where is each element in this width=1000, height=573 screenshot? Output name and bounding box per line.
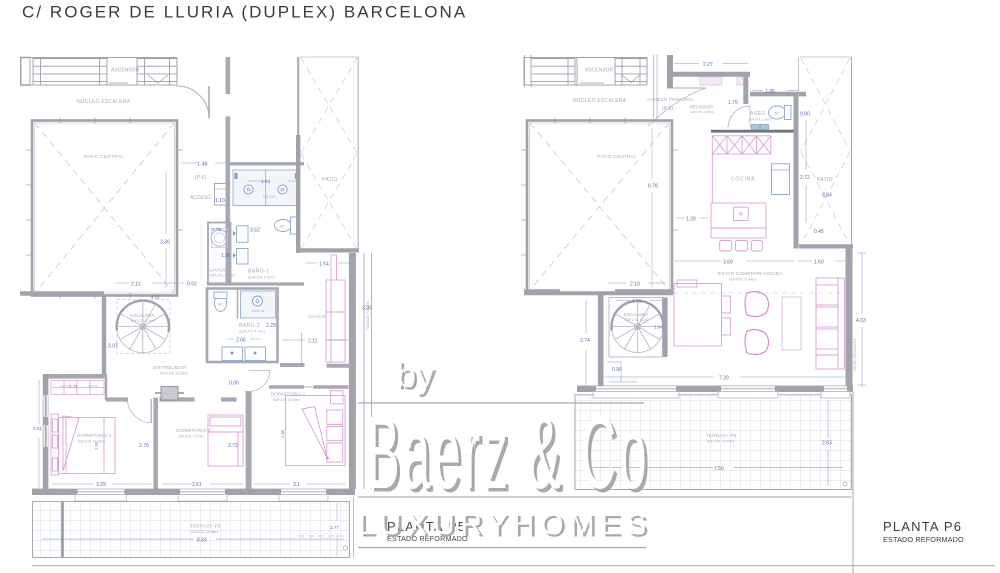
svg-text:1.93: 1.93 <box>261 179 271 185</box>
svg-text:SUP.UTIL 1.7m2: SUP.UTIL 1.7m2 <box>131 319 155 323</box>
svg-text:DUCHA: DUCHA <box>263 195 276 199</box>
svg-text:3.36: 3.36 <box>160 240 170 246</box>
svg-text:4.03: 4.03 <box>856 318 866 324</box>
svg-text:PATIO CENTRAL: PATIO CENTRAL <box>597 154 637 160</box>
svg-text:TERRAZA-P5: TERRAZA-P5 <box>190 524 221 529</box>
svg-text:3.36: 3.36 <box>362 306 372 312</box>
svg-text:C/ ROGER DE LLURIA (DUPLEX) B: C/ ROGER DE LLURIA (DUPLEX) BARCELONA <box>22 3 467 22</box>
svg-text:4.02: 4.02 <box>151 295 160 300</box>
svg-text:SUP.UTIL 21.77m2: SUP.UTIL 21.77m2 <box>707 440 734 444</box>
svg-text:2.61: 2.61 <box>192 482 202 488</box>
svg-text:ESCALERA: ESCALERA <box>624 312 649 317</box>
svg-text:3.07: 3.07 <box>108 344 118 350</box>
svg-text:1.88: 1.88 <box>221 253 231 259</box>
svg-text:2.72: 2.72 <box>800 175 810 181</box>
svg-text:SUP.UTIL 2.89m2: SUP.UTIL 2.89m2 <box>690 110 714 114</box>
svg-text:0.90: 0.90 <box>612 367 622 373</box>
svg-text:1.71: 1.71 <box>69 384 78 389</box>
svg-text:2.76: 2.76 <box>139 443 149 449</box>
svg-text:0.45: 0.45 <box>814 229 824 235</box>
svg-text:3.69: 3.69 <box>723 260 733 266</box>
svg-text:0.90: 0.90 <box>800 112 810 118</box>
svg-text:3.51: 3.51 <box>33 426 42 431</box>
svg-text:ESTADO REFORMADO: ESTADO REFORMADO <box>883 535 964 544</box>
svg-text:7.50: 7.50 <box>714 466 724 472</box>
svg-text:ACCESO PRINCIPAL: ACCESO PRINCIPAL <box>647 97 694 102</box>
svg-text:Baerz & Co: Baerz & Co <box>367 395 650 510</box>
svg-text:VESTIDOR: VESTIDOR <box>308 315 326 319</box>
svg-text:1.77: 1.77 <box>330 525 339 530</box>
svg-text:SUP.UTIL 4.70m2: SUP.UTIL 4.70m2 <box>248 276 275 280</box>
svg-text:SUP.UTIL 37.84m2: SUP.UTIL 37.84m2 <box>729 278 756 282</box>
svg-text:1.20: 1.20 <box>686 217 696 223</box>
svg-text:COCINA: COCINA <box>731 177 755 183</box>
svg-text:2.10: 2.10 <box>630 282 640 288</box>
svg-text:ESCALERA: ESCALERA <box>130 313 155 318</box>
svg-text:1.90: 1.90 <box>94 441 99 450</box>
svg-text:ESTAR-COMEDOR-COCINA: ESTAR-COMEDOR-COCINA <box>718 271 783 277</box>
svg-text:DORMITORIO-2: DORMITORIO-2 <box>77 433 112 438</box>
svg-text:SUP.UTIL 10.26m2: SUP.UTIL 10.26m2 <box>78 440 105 444</box>
svg-text:WC: WC <box>218 303 224 307</box>
svg-text:SUP.UTIL 1.7m2: SUP.UTIL 1.7m2 <box>625 318 649 322</box>
svg-text:2.06: 2.06 <box>236 338 246 344</box>
svg-text:SUP.UTIL 1.88m2: SUP.UTIL 1.88m2 <box>210 274 236 278</box>
svg-text:7.39: 7.39 <box>719 376 729 382</box>
svg-text:3.1: 3.1 <box>293 482 300 488</box>
svg-text:PATIO CENTRAL: PATIO CENTRAL <box>84 154 124 160</box>
svg-text:0.90: 0.90 <box>229 381 239 387</box>
svg-text:2.27: 2.27 <box>703 62 713 68</box>
svg-text:2.11: 2.11 <box>308 339 318 345</box>
svg-text:RECIBIDOR: RECIBIDOR <box>690 105 713 110</box>
svg-text:1.48: 1.48 <box>197 162 208 168</box>
svg-text:by: by <box>396 354 434 395</box>
svg-text:PLANTA P6: PLANTA P6 <box>883 519 962 534</box>
svg-text:1.79: 1.79 <box>632 299 641 304</box>
svg-text:3.29: 3.29 <box>96 482 106 488</box>
svg-text:L U X U R Y H O M E S: L U X U R Y H O M E S <box>358 508 646 541</box>
svg-text:NUCLEO ESCALERA: NUCLEO ESCALERA <box>77 99 131 105</box>
svg-text:2.83: 2.83 <box>822 441 832 447</box>
svg-text:SUP.UTIL 19.46m2: SUP.UTIL 19.46m2 <box>191 530 218 534</box>
svg-text:6.78: 6.78 <box>648 184 658 190</box>
svg-text:SUP.UTIL 15.04m2: SUP.UTIL 15.04m2 <box>273 398 300 402</box>
svg-text:TERRAZA-P6: TERRAZA-P6 <box>706 433 737 438</box>
svg-text:1.35: 1.35 <box>765 89 775 95</box>
svg-text:ASCENSOR: ASCENSOR <box>111 68 139 74</box>
svg-text:(P-6): (P-6) <box>662 106 673 112</box>
svg-text:2.72: 2.72 <box>228 443 238 449</box>
svg-text:BAÑO-2: BAÑO-2 <box>239 322 260 329</box>
svg-text:2.29: 2.29 <box>266 323 276 329</box>
svg-text:SUP.UTIL 13.29m2: SUP.UTIL 13.29m2 <box>160 372 188 376</box>
svg-text:1.10: 1.10 <box>215 198 225 204</box>
svg-text:DUCHA: DUCHA <box>252 309 265 313</box>
svg-text:PATIO: PATIO <box>817 177 833 183</box>
svg-text:1.54: 1.54 <box>319 262 329 268</box>
svg-text:0.92: 0.92 <box>187 282 197 288</box>
svg-text:WC: WC <box>280 225 286 229</box>
svg-text:ACCESO: ACCESO <box>190 195 211 201</box>
svg-text:3.52: 3.52 <box>250 228 260 234</box>
svg-text:(P-5): (P-5) <box>195 175 206 181</box>
svg-text:DISTRIBUIDOR: DISTRIBUIDOR <box>153 365 187 370</box>
svg-text:PATIO: PATIO <box>322 177 338 183</box>
svg-text:NUCLEO ESCALERA: NUCLEO ESCALERA <box>573 98 627 104</box>
svg-text:1.98: 1.98 <box>280 429 285 438</box>
svg-text:WC: WC <box>774 112 780 116</box>
svg-text:1.75: 1.75 <box>728 100 738 106</box>
svg-text:SUP.UTIL 1.29m2: SUP.UTIL 1.29m2 <box>748 118 772 122</box>
svg-text:PARED MEDIANERA: PARED MEDIANERA <box>853 338 857 371</box>
svg-text:8.84: 8.84 <box>197 538 207 544</box>
svg-text:1.60: 1.60 <box>814 260 824 266</box>
svg-text:BAÑO-1: BAÑO-1 <box>248 268 270 275</box>
svg-text:SUP.UTIL 4.70m2: SUP.UTIL 4.70m2 <box>239 330 265 334</box>
svg-text:DORMITORIO-3: DORMITORIO-3 <box>176 428 211 433</box>
svg-text:0.75: 0.75 <box>212 227 221 232</box>
svg-text:1.84: 1.84 <box>654 325 663 330</box>
svg-text:3.64: 3.64 <box>822 193 832 199</box>
svg-text:LAVADO: LAVADO <box>210 268 228 273</box>
svg-text:SUP.UTIL 7.07m2: SUP.UTIL 7.07m2 <box>178 435 204 439</box>
svg-text:DORMITORIO-1: DORMITORIO-1 <box>271 392 306 397</box>
svg-text:2.11: 2.11 <box>131 282 141 288</box>
svg-text:ASCENSOR: ASCENSOR <box>585 68 613 74</box>
svg-text:ASEO: ASEO <box>750 111 766 117</box>
svg-text:2.74: 2.74 <box>580 338 590 344</box>
